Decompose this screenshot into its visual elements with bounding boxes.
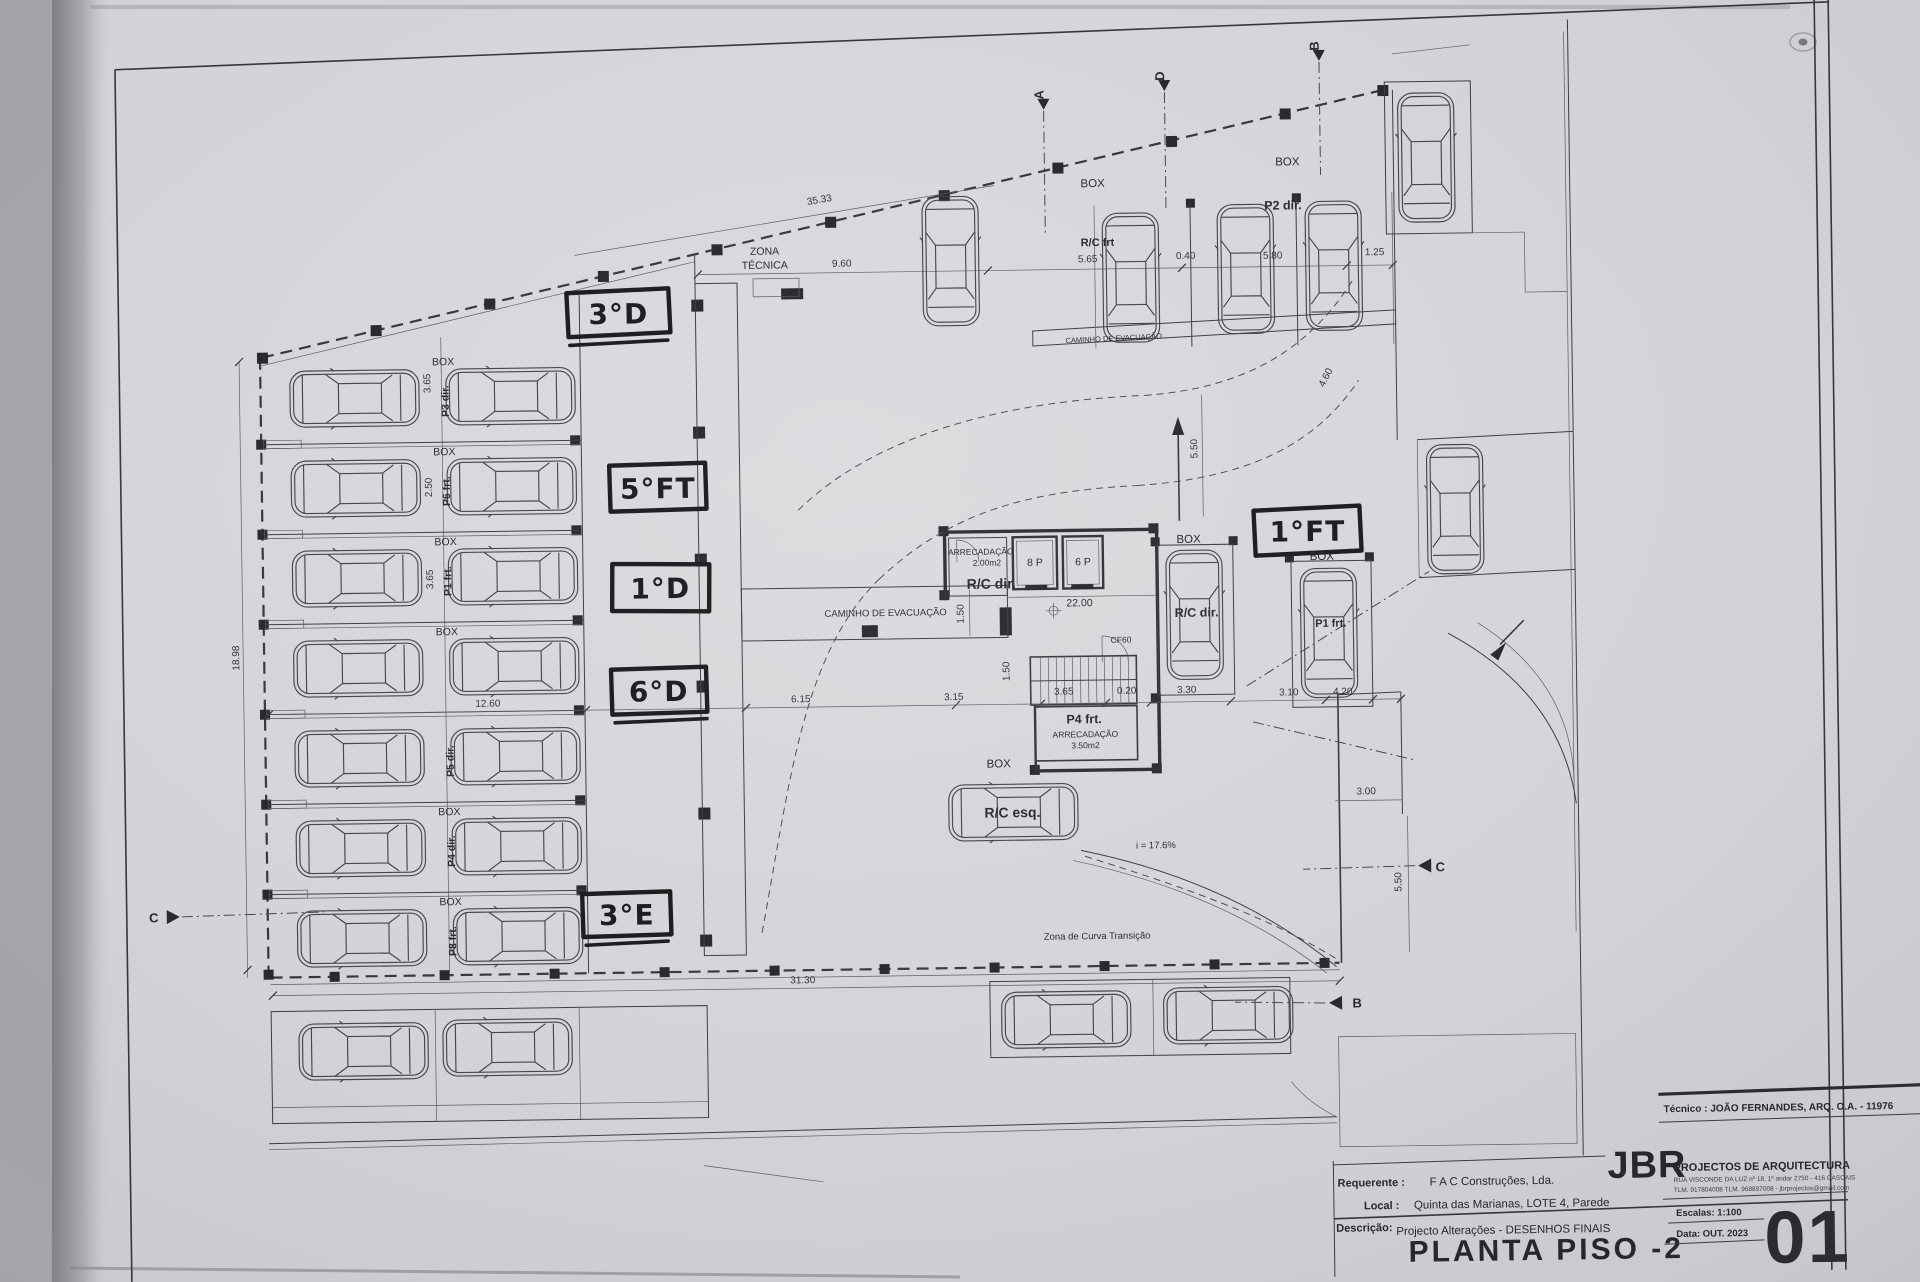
dimension-text: 1.25 [1365, 247, 1385, 258]
section-letter: C [1435, 859, 1445, 874]
dimension-text: 0.20 [1117, 686, 1137, 697]
binder-hole [1790, 33, 1816, 51]
section-letter: C [149, 910, 159, 925]
dimension-text: 3.65 [425, 569, 436, 589]
handwritten-text: 6°D [629, 675, 689, 709]
dimension-text: 1.50 [955, 604, 966, 624]
plan-label: P4 frt. [1066, 712, 1102, 726]
dimension-text: 5.80 [1263, 250, 1283, 261]
dimension-text: 1.50 [1001, 661, 1012, 681]
section-letter: B [1307, 41, 1322, 51]
box-label: BOX [439, 896, 461, 908]
dimension-text: 31.30 [790, 975, 816, 986]
plan-label: CF60 [1111, 635, 1132, 645]
paper-left-edge-shadow [52, 0, 110, 1282]
dimension-text: 3.10 [1279, 687, 1299, 698]
dimension-text: 9.60 [832, 258, 852, 269]
plan-label: 3.50m2 [1071, 740, 1100, 750]
date-label: Data: OUT. 2023 [1676, 1228, 1748, 1240]
box-label: BOX [436, 626, 458, 638]
firm-tagline: PROJECTOS DE ARQUITECTURA [1673, 1160, 1850, 1174]
local-label: Local : [1364, 1200, 1400, 1212]
plan-label: ARRECADAÇÃO [1052, 729, 1118, 740]
dimension-text: 3.30 [1177, 685, 1197, 696]
handwritten-text: 3°E [599, 898, 655, 932]
paper-top-edge [90, 5, 1790, 9]
plan-label: ZONA [750, 245, 779, 257]
dimension-text: 3.15 [944, 692, 964, 703]
section-letter: B [1352, 995, 1362, 1010]
plan-label: Zona de Curva Transição [1044, 930, 1151, 942]
dimension-text: 4.20 [1333, 687, 1353, 698]
section-letter: A [1031, 89, 1046, 99]
dimension-text: 3.65 [1054, 686, 1074, 697]
dimension-text: 5.50 [1393, 872, 1404, 892]
sheet-number: 01 [1764, 1195, 1851, 1279]
stall-label: P6 frt. [441, 476, 453, 506]
dimension-text: 3.65 [422, 373, 433, 393]
box-label: BOX [432, 356, 454, 368]
plan-label: BOX [1275, 156, 1300, 168]
plan-label: R/C frt [1081, 237, 1115, 249]
dimension-text: 6.15 [791, 694, 811, 705]
stall-label: P5 dir. [444, 745, 456, 777]
section-letter: D [1152, 71, 1167, 81]
plan-label: BOX [987, 758, 1012, 770]
plan-label: CAMINHO DE EVACUAÇÃO [824, 607, 946, 620]
stall-label: P1 frt. [442, 566, 454, 596]
requerente-value: F A C Construções, Lda. [1430, 1175, 1555, 1189]
box-label: BOX [434, 536, 456, 548]
dimension-text: 5.65 [1078, 254, 1098, 265]
plan-label: BOX [1176, 534, 1201, 546]
stall-label: P3 dir. [439, 385, 451, 417]
plan-label: R/C dir. [967, 575, 1016, 592]
stall-label: P4 dir. [446, 835, 458, 867]
handwritten-text: 1°D [630, 572, 690, 606]
plan-label: ARRECADAÇÃO [948, 546, 1014, 557]
box-label: BOX [438, 806, 460, 818]
handwritten-text: 1°FT [1269, 515, 1345, 549]
plan-label: BOX [1080, 178, 1105, 190]
plan-label: i = 17.6% [1136, 840, 1177, 852]
box-label: BOX [433, 446, 455, 458]
plan-label: P1 frt. [1315, 618, 1346, 630]
dimension-text: 18.98 [231, 645, 242, 671]
dimension-text: 12.60 [475, 698, 501, 709]
requerente-label: Requerente : [1338, 1177, 1405, 1190]
plan-label: TÉCNICA [742, 258, 788, 272]
handwritten-text: 5°FT [620, 472, 696, 506]
plan-label: R/C dir. [1175, 605, 1219, 620]
plan-label: R/C esq. [984, 804, 1040, 821]
dimension-text: 2.50 [424, 477, 435, 497]
dimension-text: 0.40 [1176, 251, 1196, 262]
descricao-label: Descrição: [1336, 1222, 1392, 1235]
plan-label: 8 P [1027, 557, 1043, 569]
stall-label: P8 frt. [447, 926, 459, 956]
dimension-text: 5.50 [1189, 438, 1200, 458]
plan-label: P2 dir. [1264, 198, 1302, 213]
scale-label: Escalas: 1:100 [1676, 1207, 1742, 1219]
drawing-title: PLANTA PISO -2 [1408, 1232, 1684, 1269]
plan-label: BOX [1310, 551, 1335, 563]
plan-label: 22.00 [1066, 597, 1093, 609]
architectural-plan-scan: BOX P3 dir. BOX P6 frt. BOX P1 frt. BOX … [0, 0, 1920, 1282]
plan-label: 2.00m2 [973, 557, 1002, 567]
plan-label: 6 P [1075, 556, 1091, 568]
handwritten-text: 3°D [588, 297, 648, 331]
dimension-text: 3.00 [1356, 786, 1376, 797]
